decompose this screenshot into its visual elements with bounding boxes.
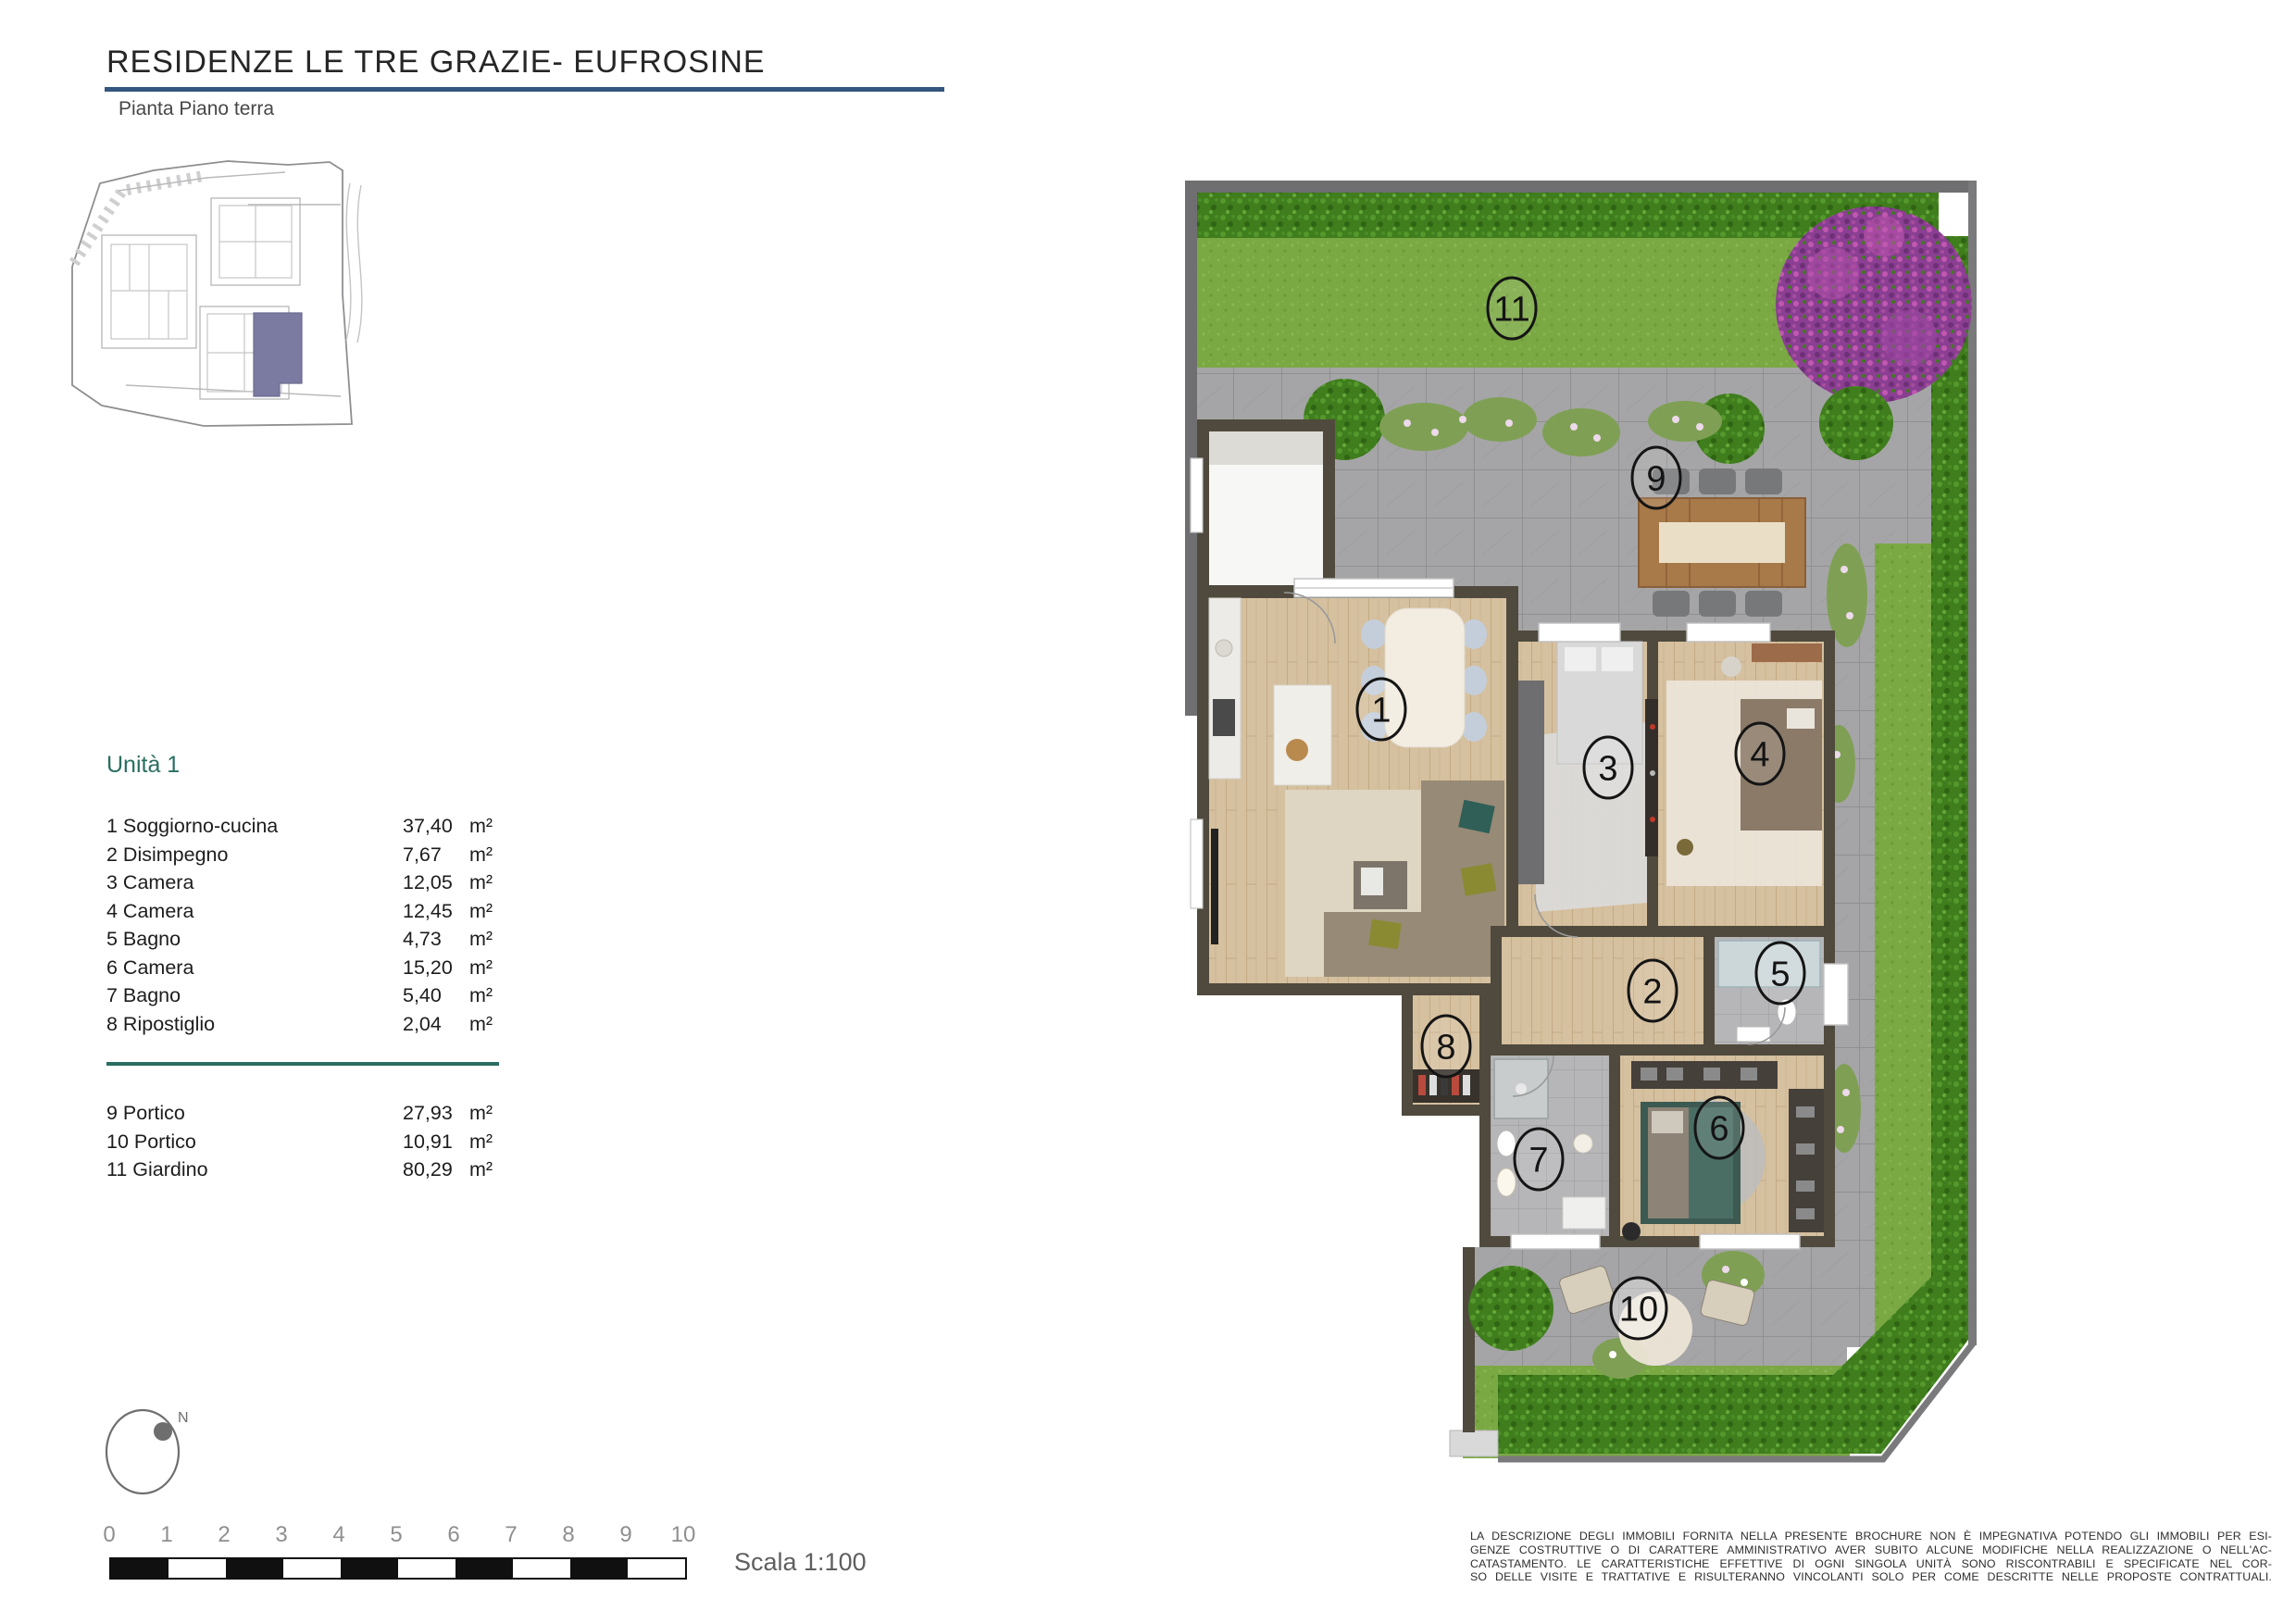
garden-step	[1450, 1430, 1498, 1456]
room-soggiorno-cucina	[1191, 579, 1518, 995]
site-plan-minimap	[63, 154, 382, 441]
legend-row: 3 Camera12,05m²	[106, 868, 506, 897]
scale-tick: 2	[218, 1522, 230, 1548]
minimap-highlighted-unit	[254, 313, 302, 396]
scale-tick: 1	[160, 1522, 172, 1548]
svg-text:6: 6	[1709, 1110, 1728, 1149]
legend-row: 10 Portico10,91m²	[106, 1128, 506, 1156]
legend-row: 1 Soggiorno-cucina37,40m²	[106, 812, 506, 841]
north-circle-icon	[106, 1410, 179, 1493]
minimap-building-2	[211, 198, 300, 285]
floor-plan: 11 9 1 3 4 2 5 8 7 6 10	[1185, 181, 1981, 1537]
svg-text:2: 2	[1642, 973, 1662, 1012]
page-title: RESIDENZE LE TRE GRAZIE- EUFROSINE	[106, 44, 766, 81]
legend-row: 11 Giardino80,29m²	[106, 1156, 506, 1184]
legend-divider	[106, 1062, 499, 1066]
svg-text:10: 10	[1619, 1291, 1658, 1330]
scale-tick: 4	[332, 1522, 344, 1548]
title-underline	[105, 87, 944, 92]
scale-tick: 5	[390, 1522, 402, 1548]
scale-bar-segments	[109, 1557, 687, 1580]
badge-1: 1	[1357, 679, 1405, 740]
badge-7: 7	[1515, 1129, 1563, 1190]
legend-row: 6 Camera15,20m²	[106, 954, 506, 982]
north-indicator: N	[98, 1398, 209, 1509]
svg-text:7: 7	[1529, 1142, 1548, 1181]
svg-text:1: 1	[1371, 692, 1391, 731]
legend-row: 7 Bagno5,40m²	[106, 981, 506, 1010]
badge-3: 3	[1584, 737, 1632, 798]
svg-text:9: 9	[1646, 460, 1666, 499]
scale-label: Scala 1:100	[734, 1548, 867, 1577]
scale-tick: 0	[103, 1522, 115, 1548]
svg-text:3: 3	[1598, 750, 1617, 789]
bath-window	[1824, 964, 1848, 1025]
svg-text:5: 5	[1770, 956, 1790, 994]
badge-8: 8	[1422, 1016, 1470, 1077]
grass-strip-right	[1875, 543, 1931, 1345]
badge-5: 5	[1756, 943, 1804, 1004]
entrance-room	[1191, 419, 1335, 597]
page-subtitle: Pianta Piano terra	[119, 98, 274, 120]
disclaimer: LA DESCRIZIONE DEGLI IMMOBILI FORNITA NE…	[1470, 1530, 2272, 1584]
svg-text:8: 8	[1436, 1029, 1455, 1068]
badge-9: 9	[1632, 447, 1680, 508]
scale-tick: 7	[505, 1522, 517, 1548]
site-boundary	[72, 161, 362, 426]
north-label: N	[178, 1410, 189, 1426]
svg-text:4: 4	[1750, 736, 1769, 775]
badge-4: 4	[1736, 723, 1784, 784]
room-camera-4	[1658, 642, 1824, 926]
legend-row: 2 Disimpegno7,67m²	[106, 841, 506, 869]
legend-row: 9 Portico27,93m²	[106, 1099, 506, 1128]
scale-tick: 8	[562, 1522, 574, 1548]
scale-tick: 10	[671, 1522, 696, 1548]
unit-title: Unità 1	[106, 752, 514, 779]
legend-row: 5 Bagno4,73m²	[106, 925, 506, 954]
flowering-bush	[1776, 206, 1972, 403]
badge-6: 6	[1695, 1097, 1743, 1158]
scale-tick: 9	[619, 1522, 631, 1548]
minimap-building-1	[102, 235, 196, 348]
svg-text:11: 11	[1493, 291, 1529, 330]
rooms-3-4-block	[1507, 623, 1835, 937]
legend-row: 4 Camera12,45m²	[106, 897, 506, 926]
north-dot-icon	[154, 1422, 172, 1441]
legend-row: 8 Ripostiglio2,04m²	[106, 1010, 506, 1039]
scale-tick: 6	[447, 1522, 459, 1548]
badge-2: 2	[1628, 960, 1677, 1021]
legend: Unità 1 1 Soggiorno-cucina37,40m² 2 Disi…	[106, 752, 514, 1184]
minimap-building-3	[200, 306, 302, 399]
badge-11: 11	[1488, 278, 1536, 339]
scale-tick: 3	[275, 1522, 287, 1548]
hedge-right	[1931, 236, 1968, 1340]
badge-10: 10	[1611, 1278, 1666, 1339]
scale-bar: 0 1 2 3 4 5 6 7 8 9 10	[106, 1522, 755, 1596]
